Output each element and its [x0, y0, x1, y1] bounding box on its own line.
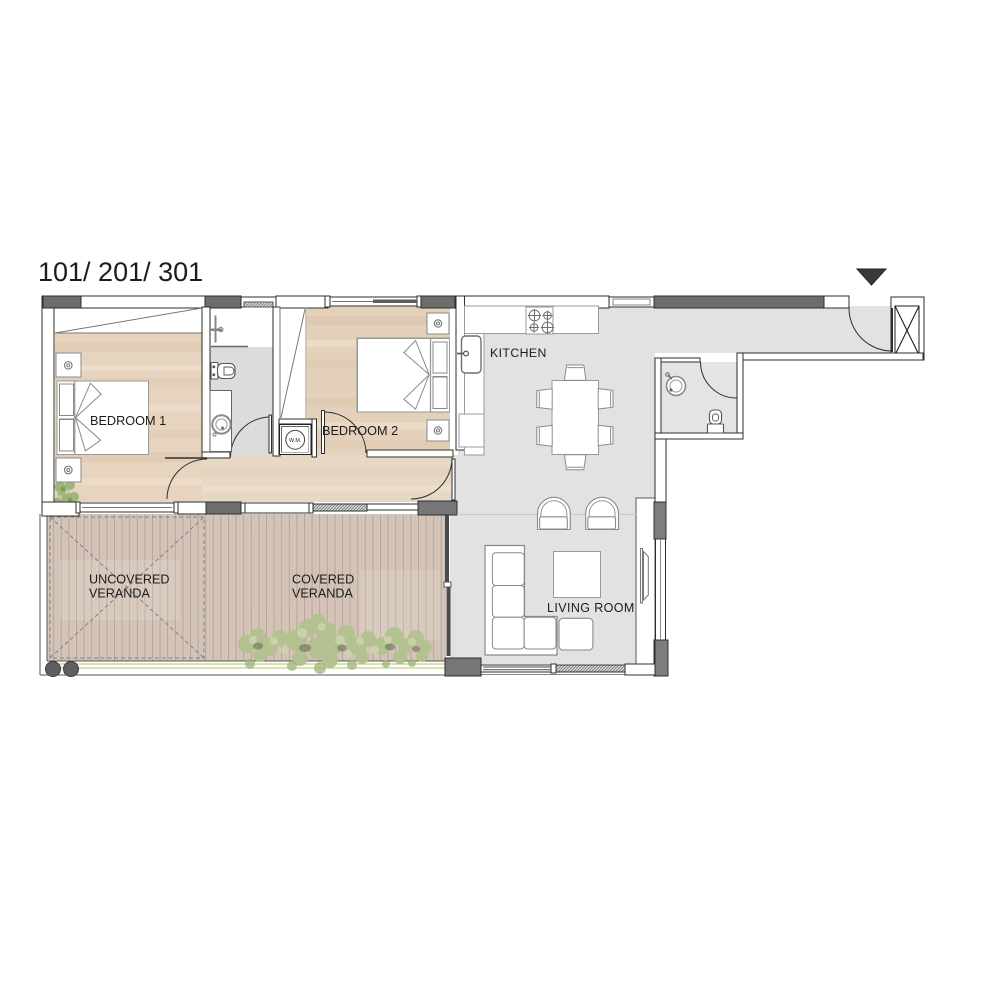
svg-text:101/ 201/ 301: 101/ 201/ 301: [38, 257, 203, 287]
svg-text:W.M.: W.M.: [289, 438, 301, 444]
svg-text:BEDROOM 1: BEDROOM 1: [90, 414, 166, 428]
svg-text:UNCOVERED: UNCOVERED: [89, 573, 169, 587]
svg-text:BEDROOM 2: BEDROOM 2: [322, 424, 398, 438]
svg-text:VERANDA: VERANDA: [292, 587, 353, 601]
svg-text:VERANDA: VERANDA: [89, 587, 150, 601]
svg-text:KITCHEN: KITCHEN: [490, 346, 547, 360]
svg-text:COVERED: COVERED: [292, 573, 354, 587]
svg-text:LIVING ROOM: LIVING ROOM: [547, 601, 635, 615]
